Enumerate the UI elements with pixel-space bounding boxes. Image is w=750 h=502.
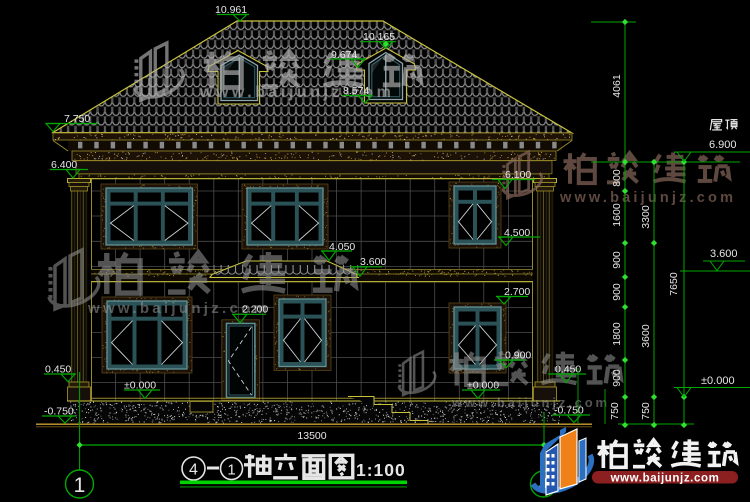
svg-text:750: 750 xyxy=(609,402,621,420)
svg-text:1:100: 1:100 xyxy=(356,460,406,480)
svg-text:www.baijunjz.com: www.baijunjz.com xyxy=(451,395,610,410)
svg-text:±0.000: ±0.000 xyxy=(701,375,735,387)
svg-text:800: 800 xyxy=(611,169,623,187)
svg-text:1: 1 xyxy=(74,474,86,497)
svg-text:3.600: 3.600 xyxy=(710,248,738,260)
svg-text:3600: 3600 xyxy=(640,324,652,348)
svg-text:13500: 13500 xyxy=(297,430,326,442)
svg-text:900: 900 xyxy=(611,251,623,269)
svg-text:3300: 3300 xyxy=(640,205,652,229)
svg-text:www.baijunjz.com: www.baijunjz.com xyxy=(610,473,720,485)
svg-text:www.baijunjz.com: www.baijunjz.com xyxy=(559,190,736,206)
svg-text:1: 1 xyxy=(227,462,235,479)
svg-text:900: 900 xyxy=(611,369,623,387)
svg-text:750: 750 xyxy=(640,402,652,420)
svg-text:2.200: 2.200 xyxy=(242,304,268,316)
svg-text:3.600: 3.600 xyxy=(360,256,386,268)
svg-text:1600: 1600 xyxy=(611,203,623,227)
svg-text:4: 4 xyxy=(189,462,198,479)
svg-text:6.900: 6.900 xyxy=(709,139,737,151)
svg-text:4061: 4061 xyxy=(611,74,623,98)
svg-text:7650: 7650 xyxy=(668,272,680,296)
svg-text:1800: 1800 xyxy=(611,322,623,346)
svg-text:900: 900 xyxy=(611,283,623,301)
